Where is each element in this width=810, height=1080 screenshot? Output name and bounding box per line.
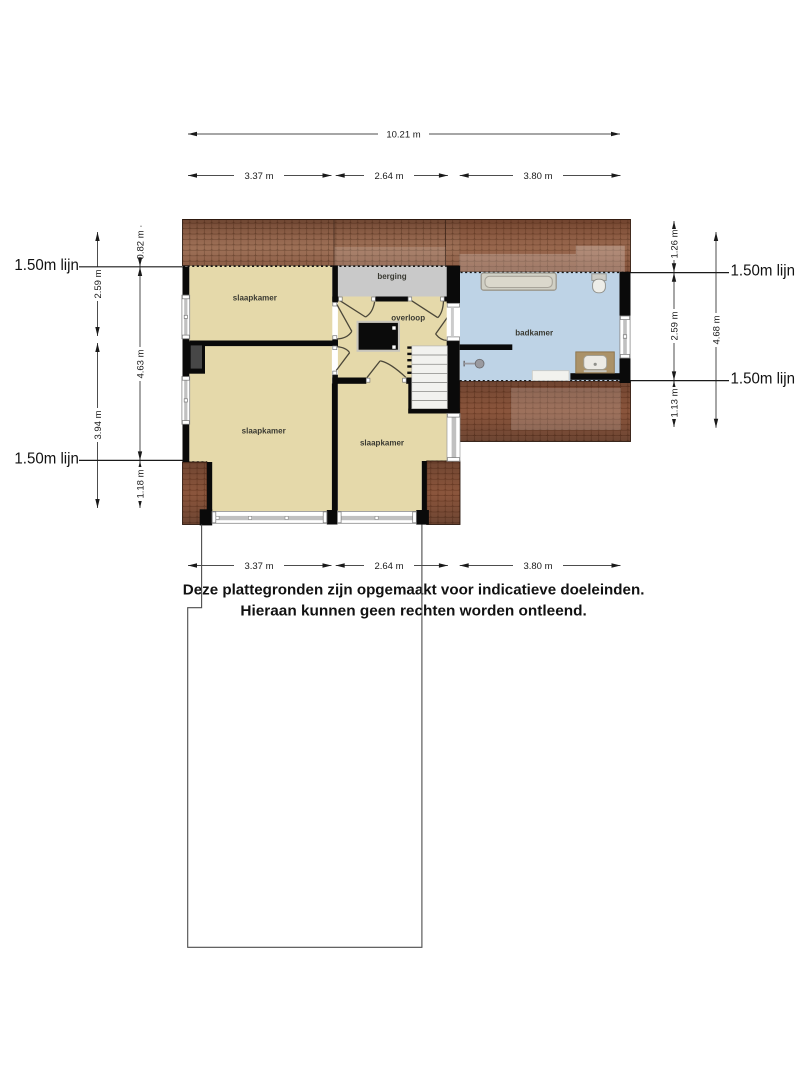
svg-text:slaapkamer: slaapkamer bbox=[233, 294, 277, 303]
svg-text:2.64 m: 2.64 m bbox=[374, 561, 403, 572]
svg-text:2.59 m: 2.59 m bbox=[93, 269, 104, 298]
svg-text:1.18 m: 1.18 m bbox=[136, 469, 147, 498]
svg-text:1.50m lijn: 1.50m lijn bbox=[731, 263, 796, 280]
svg-text:1.26 m: 1.26 m bbox=[670, 229, 681, 258]
svg-text:1.50m lijn: 1.50m lijn bbox=[731, 371, 796, 388]
svg-text:3.94 m: 3.94 m bbox=[93, 410, 104, 439]
svg-text:3.80 m: 3.80 m bbox=[523, 171, 552, 182]
svg-text:berging: berging bbox=[377, 272, 406, 281]
svg-text:2.59 m: 2.59 m bbox=[670, 311, 681, 340]
svg-text:1.50m lijn: 1.50m lijn bbox=[14, 451, 79, 468]
svg-text:slaapkamer: slaapkamer bbox=[242, 426, 286, 435]
svg-text:3.80 m: 3.80 m bbox=[523, 561, 552, 572]
svg-text:10.21 m: 10.21 m bbox=[386, 130, 420, 141]
svg-text:Deze plattegronden zijn opgema: Deze plattegronden zijn opgemaakt voor i… bbox=[183, 581, 645, 598]
svg-text:3.37 m: 3.37 m bbox=[244, 561, 273, 572]
svg-text:overloop: overloop bbox=[391, 313, 425, 322]
svg-text:badkamer: badkamer bbox=[515, 329, 553, 338]
svg-text:Hieraan kunnen geen rechten wo: Hieraan kunnen geen rechten worden ontle… bbox=[240, 602, 586, 619]
svg-text:1.50m lijn: 1.50m lijn bbox=[14, 257, 79, 274]
svg-text:slaapkamer: slaapkamer bbox=[360, 438, 404, 447]
svg-text:0.82 m ·: 0.82 m · bbox=[136, 225, 147, 260]
svg-text:4.63 m: 4.63 m bbox=[136, 349, 147, 378]
svg-text:1.13 m: 1.13 m bbox=[670, 388, 681, 417]
svg-text:3.37 m: 3.37 m bbox=[244, 171, 273, 182]
svg-text:4.68 m: 4.68 m bbox=[712, 315, 723, 344]
svg-text:2.64 m: 2.64 m bbox=[374, 171, 403, 182]
